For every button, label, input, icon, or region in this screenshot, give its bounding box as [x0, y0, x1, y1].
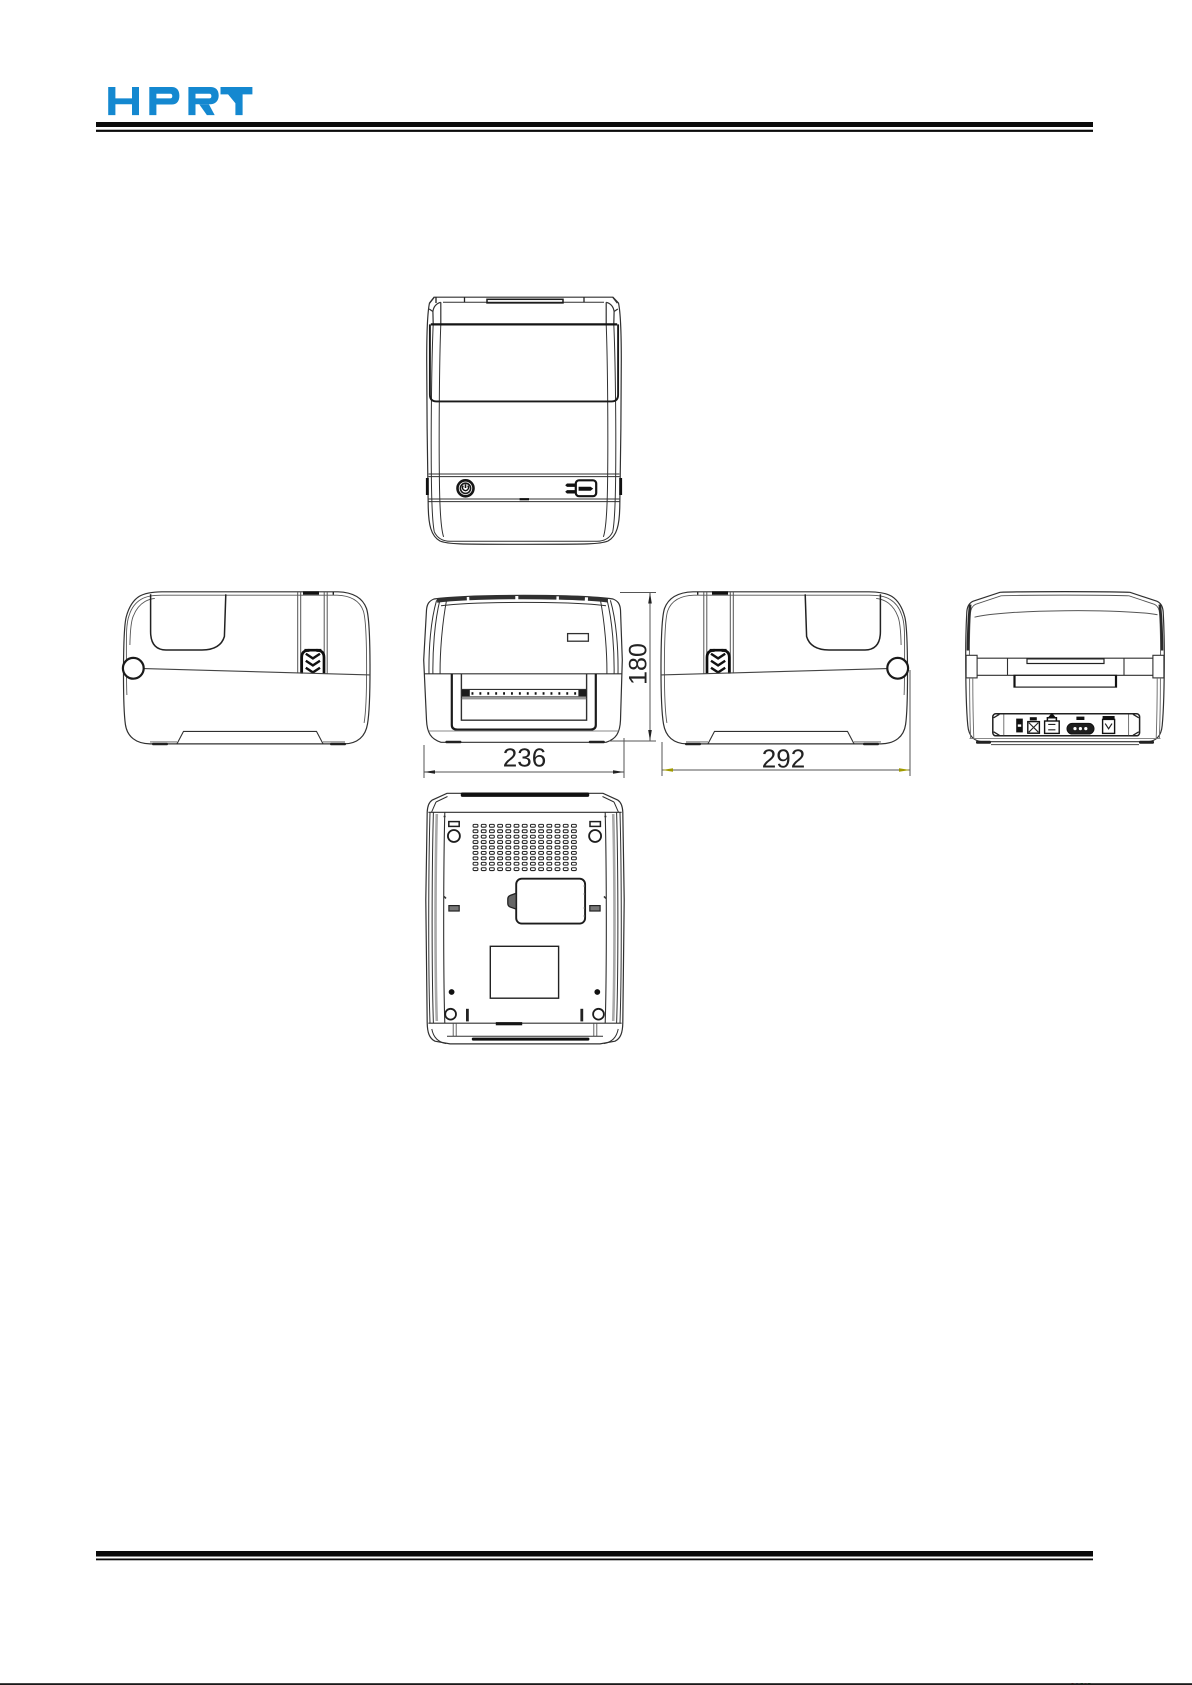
svg-text:180: 180 — [625, 643, 653, 685]
svg-text:236: 236 — [503, 743, 546, 773]
svg-text:292: 292 — [762, 744, 805, 774]
